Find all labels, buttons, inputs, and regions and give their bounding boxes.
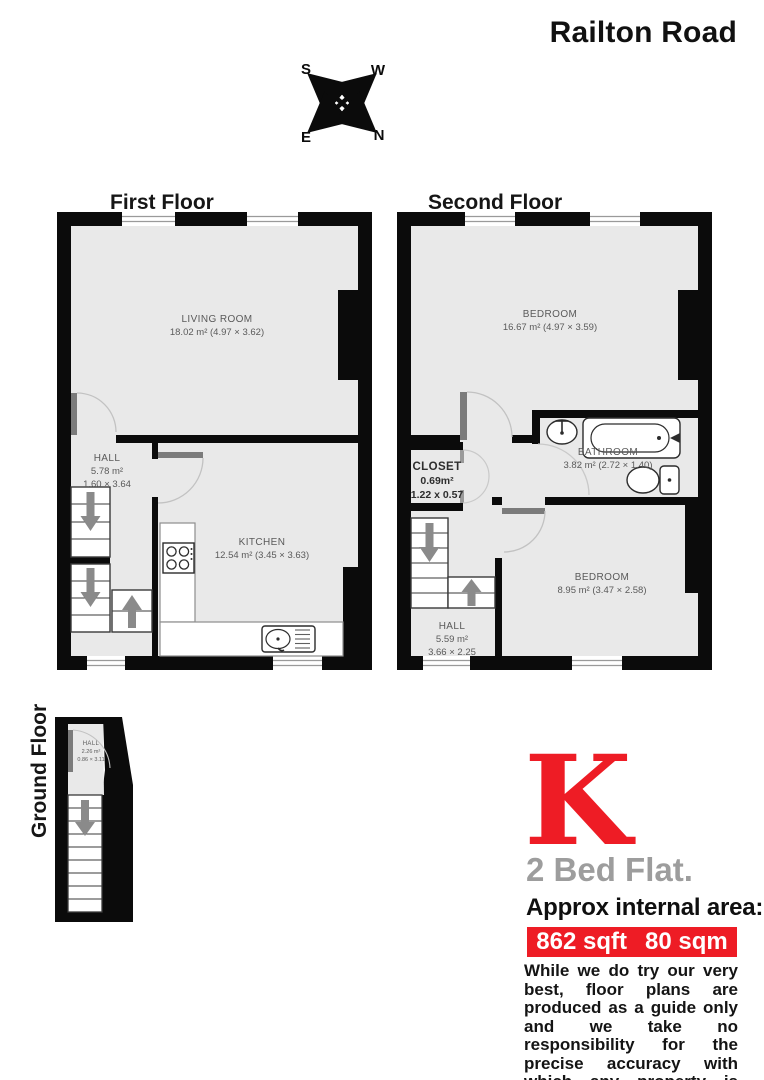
bedroom1-label: BEDROOM 16.67 m² (4.97 × 3.59): [503, 308, 597, 334]
window: [87, 656, 125, 670]
compass-n: N: [374, 127, 385, 144]
window: [465, 212, 515, 226]
compass-rose: S W E N: [293, 56, 393, 153]
window: [590, 212, 640, 226]
first-floor-drawing: [57, 212, 372, 670]
area-banner: 862 sqft 80 sqm: [527, 927, 737, 957]
window: [572, 656, 622, 670]
stairs-down-upper: [71, 487, 110, 557]
bedroom2-door: [502, 508, 545, 514]
window: [247, 212, 298, 226]
second-floor-plan: BEDROOM 16.67 m² (4.97 × 3.59) CLOSET 0.…: [397, 212, 712, 670]
kitchen-door: [158, 452, 203, 458]
bathroom-label: BATHROOM 3.82 m² (2.72 × 1.40): [564, 446, 653, 472]
sink-icon: [262, 626, 315, 652]
chimney-breast: [678, 290, 698, 380]
compass-e: E: [301, 129, 311, 146]
floorplan-page: Railton Road S W E N First Floor Second …: [0, 0, 764, 1080]
entry-door: [68, 730, 73, 772]
disclaimer-text: While we do try our very best, floor pla…: [524, 962, 738, 1080]
living-room-label: LIVING ROOM 18.02 m² (4.97 × 3.62): [170, 313, 264, 339]
stairs-down: [411, 518, 448, 608]
hall-label: HALL 5.59 m² 3.66 × 2.25: [428, 620, 476, 659]
agency-logo: K: [524, 740, 632, 864]
hall-label: HALL 2.26 m² 0.86 × 3.11: [77, 740, 104, 764]
bedroom1-door: [460, 392, 467, 440]
stove-icon: [163, 543, 194, 573]
property-type: 2 Bed Flat.: [526, 851, 693, 889]
area-sqft: 862 sqft: [536, 928, 627, 956]
area-heading: Approx internal area:: [526, 894, 763, 922]
wall-thickening: [343, 567, 358, 656]
compass-w: W: [371, 62, 386, 79]
window: [273, 656, 322, 670]
stairs-up: [112, 590, 152, 632]
stairs-down-lower: [71, 564, 110, 632]
compass-icon: S W E N: [293, 56, 393, 148]
window: [122, 212, 175, 226]
ground-floor-plan: HALL 2.26 m² 0.86 × 3.11: [48, 710, 138, 928]
compass-s: S: [301, 61, 311, 78]
sink-icon: [547, 420, 577, 444]
wall-thickening: [685, 502, 698, 593]
living-room-door: [71, 393, 77, 435]
hall-label: HALL 5.78 m² 1.60 × 3.64: [83, 452, 131, 491]
closet-label: CLOSET 0.69m² 1.22 x 0.57: [411, 460, 464, 502]
chimney-breast: [338, 290, 358, 380]
page-title: Railton Road: [550, 16, 737, 50]
first-floor-plan: LIVING ROOM 18.02 m² (4.97 × 3.62) HALL …: [57, 212, 372, 670]
stairs-up: [448, 577, 495, 608]
second-floor-drawing: [397, 212, 712, 670]
kitchen-label: KITCHEN 12.54 m² (3.45 × 3.63): [215, 536, 309, 562]
area-sqm: 80 sqm: [645, 928, 728, 956]
bedroom2-label: BEDROOM 8.95 m² (3.47 × 2.58): [558, 571, 647, 597]
